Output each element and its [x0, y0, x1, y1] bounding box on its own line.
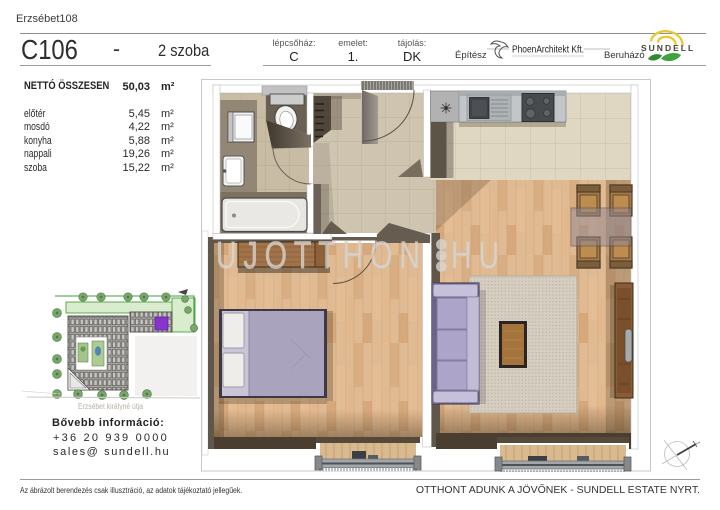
svg-text:UJOTTHON: UJOTTHON: [216, 235, 427, 277]
svg-text:HU: HU: [451, 235, 506, 277]
svg-text:SUNDELL: SUNDELL: [641, 43, 695, 53]
svg-text:PhoenArchitekt Kft.: PhoenArchitekt Kft.: [512, 45, 584, 56]
